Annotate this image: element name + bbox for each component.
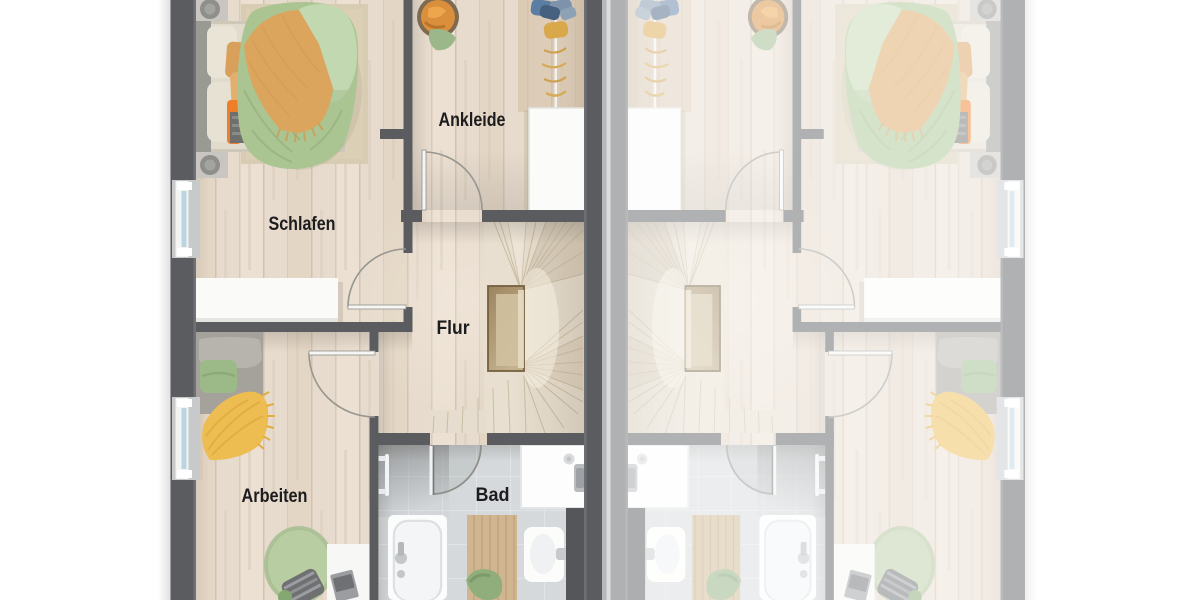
svg-text:Arbeiten: Arbeiten [242,486,308,507]
svg-text:Bad: Bad [476,485,510,506]
svg-text:Ankleide: Ankleide [439,110,506,131]
svg-text:Schlafen: Schlafen [269,214,336,235]
svg-text:Flur: Flur [437,318,471,339]
